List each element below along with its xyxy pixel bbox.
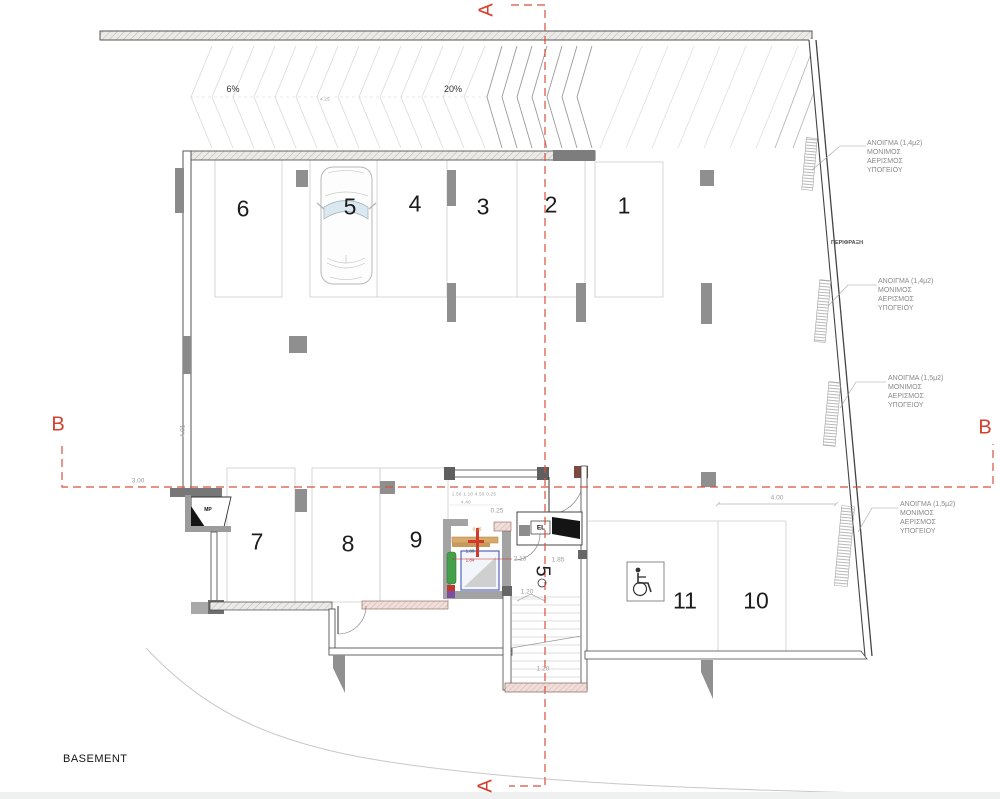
dim-mech-top: 0.25	[491, 508, 504, 515]
annotation-line: ΥΠΟΓΕΙΟΥ	[888, 401, 943, 410]
car-icon	[317, 167, 376, 284]
parking-space-number: 1	[618, 193, 631, 220]
parking-space-number: 2	[545, 192, 558, 219]
annotation-line: ΥΠΟΓΕΙΟΥ	[878, 304, 933, 313]
parking-space-number: 9	[410, 527, 423, 554]
vent-annotation-3: ΑΝΟΙΓΜΑ (1,5μ2) ΜΟΝΙΜΟΣ ΑΕΡΙΣΜΟΣ ΥΠΟΓΕΙΟ…	[888, 374, 943, 410]
site-boundary-curve	[146, 648, 1000, 796]
section-marker-b-right: B	[978, 417, 991, 440]
annotation-line: ΑΝΟΙΓΜΑ (1,5μ2)	[900, 500, 955, 509]
utility-room-label: MP	[204, 507, 212, 513]
annotation-line: ΑΕΡΙΣΜΟΣ	[878, 295, 933, 304]
parking-space-number: 7	[251, 529, 264, 556]
dim-aisle: 3.00	[132, 478, 145, 485]
dim-mech-a: 1.80	[466, 549, 475, 554]
vent-annotation-4: ΑΝΟΙΓΜΑ (1,5μ2) ΜΟΝΙΜΟΣ ΑΕΡΙΣΜΟΣ ΥΠΟΓΕΙΟ…	[900, 500, 955, 536]
vent-annotation-2: ΑΝΟΙΓΜΑ (1,4μ2) ΜΟΝΙΜΟΣ ΑΕΡΙΣΜΟΣ ΥΠΟΓΕΙΟ…	[878, 277, 933, 313]
floor-plan-drawing	[0, 0, 1000, 799]
dim-mech-b: 1.84	[466, 558, 475, 563]
dimension-lines	[449, 502, 838, 506]
annotation-line: ΑΕΡΙΣΜΟΣ	[888, 392, 943, 401]
ramp-slope-gentle: 6%	[226, 84, 239, 94]
parking-bay-outlines	[215, 160, 786, 651]
dim-left-wall: 4.01	[180, 425, 187, 438]
parking-space-number: 4	[409, 191, 422, 218]
annotation-line: ΜΟΝΙΜΟΣ	[888, 383, 943, 392]
ramp-hatching	[190, 46, 814, 148]
parking-space-number: 6	[237, 196, 250, 223]
parking-space-number: 3	[477, 194, 490, 221]
stair-door-tag: 5	[531, 565, 554, 576]
annotation-line: ΥΠΟΓΕΙΟΥ	[867, 166, 922, 175]
wheelchair-icon	[627, 562, 664, 601]
elevator-label: EL	[537, 525, 545, 532]
dim-stair-top: 1.20	[521, 589, 534, 596]
elevator	[514, 512, 582, 560]
garage-walls	[170, 150, 867, 699]
dim-stair-bottom: 1.20	[537, 666, 550, 673]
dim-mech-offset: 0.25	[473, 527, 482, 532]
parking-space-number: 11	[673, 588, 697, 615]
annotation-line: ΑΕΡΙΣΜΟΣ	[867, 157, 922, 166]
basement-floor-plan: A A B B 6% 20% 4.25 1 2 3 4 5 6 7 8 9 10…	[0, 0, 1000, 799]
dim-lobby-b: 1.85	[552, 557, 565, 564]
floor-title: BASEMENT	[63, 753, 128, 765]
page-edge	[0, 792, 1000, 799]
dim-tiny-row1: 1.50 1.10 4.50 0.25	[452, 492, 496, 497]
annotation-line: ΜΟΝΙΜΟΣ	[900, 509, 955, 518]
annotation-line: ΥΠΟΓΕΙΟΥ	[900, 527, 955, 536]
parking-space-number: 10	[743, 588, 769, 615]
annotation-line: ΑΝΟΙΓΜΑ (1,5μ2)	[888, 374, 943, 383]
dim-tiny-row2: 4.40	[461, 500, 471, 505]
annotation-line: ΜΟΝΙΜΟΣ	[878, 286, 933, 295]
section-marker-a-bottom: A	[475, 779, 498, 792]
annotation-line: ΑΕΡΙΣΜΟΣ	[900, 518, 955, 527]
ramp-length-dim: 4.25	[320, 97, 330, 102]
fence-label: ΠΕΡΙΦΡΑΞΗ	[831, 240, 863, 246]
annotation-line: ΑΝΟΙΓΜΑ (1,4μ2)	[867, 139, 922, 148]
section-marker-b-left: B	[51, 414, 64, 437]
annotation-line: ΑΝΟΙΓΜΑ (1,4μ2)	[878, 277, 933, 286]
vent-annotation-1: ΑΝΟΙΓΜΑ (1,4μ2) ΜΟΝΙΜΟΣ ΑΕΡΙΣΜΟΣ ΥΠΟΓΕΙΟ…	[867, 139, 922, 175]
dim-lobby-a: 2.13	[514, 556, 527, 563]
pump-equipment	[447, 552, 456, 584]
ramp-slope-steep: 20%	[444, 84, 462, 94]
dim-bay10: 4.00	[771, 495, 784, 502]
section-marker-a-top: A	[476, 3, 499, 16]
annotation-line: ΜΟΝΙΜΟΣ	[867, 148, 922, 157]
parking-space-number: 8	[342, 531, 355, 558]
parking-space-number: 5	[344, 194, 357, 221]
